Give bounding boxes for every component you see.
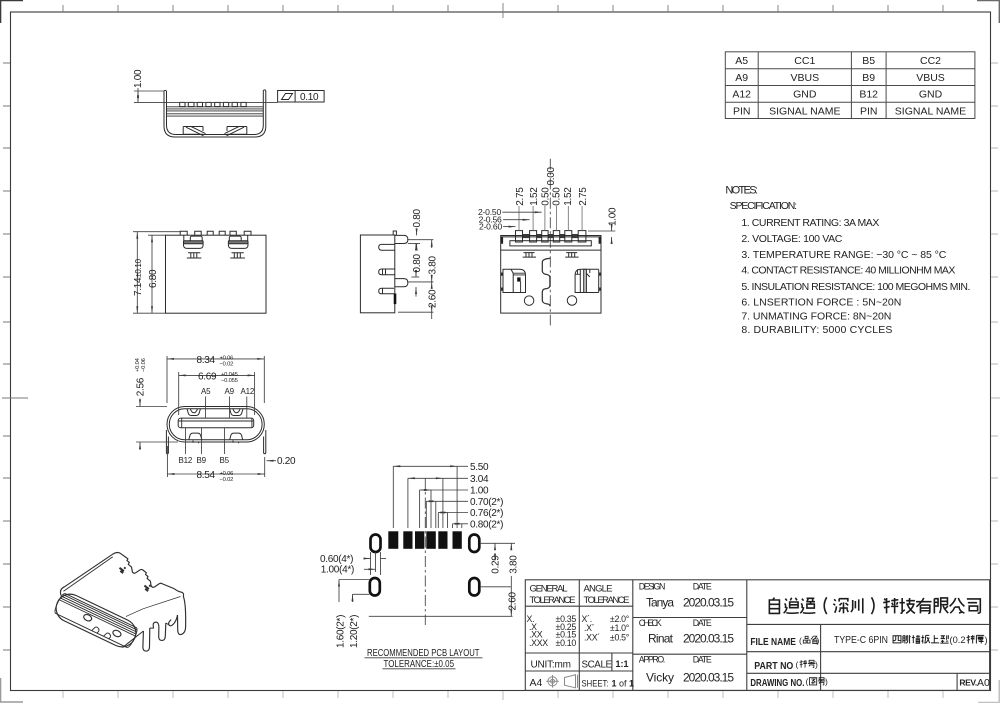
- svg-text:0.76(2*): 0.76(2*): [470, 508, 503, 519]
- svg-text:NOTES:: NOTES:: [725, 185, 758, 197]
- svg-text:1.00: 1.00: [133, 69, 144, 88]
- svg-text:3.04: 3.04: [470, 474, 489, 485]
- svg-text:GND: GND: [793, 89, 817, 101]
- svg-text:8.34: 8.34: [197, 355, 216, 366]
- svg-text:1 of 1: 1 of 1: [612, 679, 635, 689]
- svg-text:SHEET:: SHEET:: [582, 679, 609, 689]
- svg-text:1.00: 1.00: [470, 486, 489, 497]
- svg-text:0.80: 0.80: [412, 253, 423, 272]
- svg-text:1.00(4*): 1.00(4*): [321, 565, 354, 576]
- svg-text:A9: A9: [225, 387, 235, 396]
- svg-text:PART NO: PART NO: [754, 660, 793, 672]
- svg-text:−0.02: −0.02: [220, 477, 234, 483]
- svg-text:TYPE-C 6PIN: TYPE-C 6PIN: [834, 635, 888, 646]
- svg-text:REV.: REV.: [959, 678, 976, 688]
- svg-text:APPRO.: APPRO.: [639, 655, 666, 665]
- svg-text:GND: GND: [919, 89, 943, 101]
- svg-text:2.60: 2.60: [508, 591, 519, 610]
- svg-text:1.00: 1.00: [607, 207, 618, 226]
- svg-text:FILE NAME: FILE NAME: [750, 636, 796, 648]
- svg-text:SIGNAL NAME: SIGNAL NAME: [769, 105, 840, 117]
- svg-text:CHECK: CHECK: [639, 618, 662, 628]
- svg-text:(: (: [799, 636, 802, 646]
- svg-text:0.60(4*): 0.60(4*): [320, 554, 353, 565]
- svg-text:DATE: DATE: [693, 582, 712, 592]
- svg-text:8. DURABILITY: 5000 CYCLE: 8. DURABILITY: 5000 CYCLES: [741, 324, 892, 336]
- svg-text:.XX´: .XX´: [584, 632, 600, 642]
- svg-text:±0.5°: ±0.5°: [610, 632, 629, 642]
- svg-text:2.60: 2.60: [428, 289, 439, 308]
- svg-text:3.80: 3.80: [509, 555, 520, 574]
- svg-text:A9: A9: [735, 72, 748, 84]
- svg-text:(0.2: (0.2: [950, 635, 966, 645]
- svg-text:A12: A12: [241, 387, 255, 396]
- svg-text:7. UNMATING FORCE: 8N~20N: 7. UNMATING FORCE: 8N~20N: [741, 311, 891, 323]
- svg-text:2.56: 2.56: [136, 377, 147, 396]
- svg-text:1:1: 1:1: [616, 659, 629, 669]
- svg-text:DRAWING NO.: DRAWING NO.: [750, 678, 804, 689]
- svg-text:2.75: 2.75: [515, 187, 526, 206]
- svg-text:SIGNAL NAME: SIGNAL NAME: [895, 105, 966, 117]
- svg-text:.XXX: .XXX: [529, 638, 548, 648]
- svg-text:B5: B5: [862, 55, 875, 67]
- svg-text:1.52: 1.52: [529, 187, 540, 206]
- svg-text:1. CURRENT RATING: 3A MAX: 1. CURRENT RATING: 3A MAX: [741, 217, 879, 229]
- svg-text:0.50: 0.50: [541, 187, 552, 206]
- svg-text:1.20(2*): 1.20(2*): [349, 615, 360, 648]
- svg-text:DESIGN: DESIGN: [639, 582, 666, 592]
- svg-text:(: (: [806, 677, 809, 687]
- svg-text:1.52: 1.52: [563, 187, 574, 206]
- svg-text:2020.03.15: 2020.03.15: [683, 632, 734, 646]
- svg-text:B12: B12: [179, 456, 193, 465]
- svg-text:4. CONTACT RESISTANCE: 40: 4. CONTACT RESISTANCE: 40 MILLIONHM MAX: [741, 264, 955, 276]
- svg-text:B9: B9: [862, 72, 875, 84]
- svg-text:−0.02: −0.02: [220, 362, 234, 368]
- svg-text:SPECIFICATION:: SPECIFICATION:: [730, 200, 798, 212]
- svg-text:Tanya: Tanya: [646, 596, 674, 610]
- svg-text:−0.055: −0.055: [221, 378, 238, 384]
- svg-text:PIN: PIN: [860, 105, 878, 117]
- svg-text:A5: A5: [201, 387, 211, 396]
- svg-text:2020.03.15: 2020.03.15: [683, 671, 734, 685]
- svg-text:VBUS: VBUS: [791, 72, 820, 84]
- svg-text:0.80(2*): 0.80(2*): [470, 519, 503, 530]
- svg-text:A4: A4: [530, 677, 543, 689]
- svg-text:CC2: CC2: [920, 55, 941, 67]
- svg-text:Rinat: Rinat: [648, 632, 674, 646]
- svg-text:TOLERANCE: TOLERANCE: [530, 595, 576, 606]
- svg-text:): ): [985, 635, 988, 645]
- svg-text:3.80: 3.80: [428, 255, 439, 274]
- svg-text:0.50: 0.50: [552, 187, 563, 206]
- svg-text:1.60(2*): 1.60(2*): [335, 615, 346, 648]
- svg-text:6.80: 6.80: [148, 269, 159, 288]
- svg-text:ANGLE: ANGLE: [584, 584, 613, 595]
- svg-text:A0: A0: [977, 677, 990, 689]
- svg-text:±0.10: ±0.10: [556, 638, 577, 648]
- svg-text:Vicky: Vicky: [646, 671, 674, 685]
- svg-text:0.20: 0.20: [277, 456, 296, 467]
- svg-text:5.50: 5.50: [470, 462, 489, 473]
- svg-text:0.00: 0.00: [546, 166, 557, 185]
- svg-text:0.29: 0.29: [491, 555, 502, 574]
- svg-text:CC1: CC1: [794, 55, 815, 67]
- svg-text:PIN: PIN: [733, 105, 751, 117]
- svg-text:2-0.60: 2-0.60: [479, 222, 503, 231]
- svg-text:TOLERANCE: TOLERANCE: [584, 595, 630, 606]
- svg-text:−0.06: −0.06: [141, 358, 147, 372]
- svg-text:): ): [825, 677, 828, 687]
- svg-text:VBUS: VBUS: [916, 72, 945, 84]
- svg-text:3. TEMPERATURE RANGE: −30 °: 3. TEMPERATURE RANGE: −30 °C ~ 85 °C: [741, 249, 946, 261]
- svg-text:GENERAL: GENERAL: [530, 584, 568, 595]
- svg-text:2. VOLTAGE: 100 VAC: 2. VOLTAGE: 100 VAC: [741, 233, 842, 245]
- svg-text:TOLERANCE:±0.05: TOLERANCE:±0.05: [384, 658, 455, 670]
- svg-text:0.10: 0.10: [300, 92, 319, 103]
- svg-text:5. INSULATION RESISTANCE: 1: 5. INSULATION RESISTANCE: 100 MEGOHMS MI…: [741, 281, 970, 293]
- svg-text:8.54: 8.54: [197, 470, 216, 481]
- svg-text:A12: A12: [732, 89, 751, 101]
- svg-text:): ): [815, 659, 818, 669]
- svg-text:A5: A5: [735, 55, 748, 67]
- svg-text:DATE: DATE: [693, 618, 712, 628]
- svg-text:UNIT:mm: UNIT:mm: [531, 660, 571, 671]
- svg-text:B5: B5: [220, 456, 230, 465]
- svg-text:B12: B12: [859, 89, 878, 101]
- svg-text:7.14±0.10: 7.14±0.10: [133, 258, 144, 296]
- svg-text:B9: B9: [197, 456, 207, 465]
- svg-text:2.75: 2.75: [578, 187, 589, 206]
- svg-text:): ): [817, 636, 820, 646]
- svg-text:0.80: 0.80: [412, 208, 423, 227]
- svg-text:(: (: [796, 659, 799, 669]
- svg-text:DATE: DATE: [693, 655, 712, 665]
- svg-text:6.69: 6.69: [198, 371, 217, 382]
- svg-text:0.70(2*): 0.70(2*): [470, 497, 503, 508]
- svg-text:6. LNSERTION FORCE : 5N~20: 6. LNSERTION FORCE : 5N~20N: [741, 297, 901, 309]
- svg-text:2020.03.15: 2020.03.15: [683, 596, 734, 610]
- svg-text:SCALE: SCALE: [582, 660, 613, 671]
